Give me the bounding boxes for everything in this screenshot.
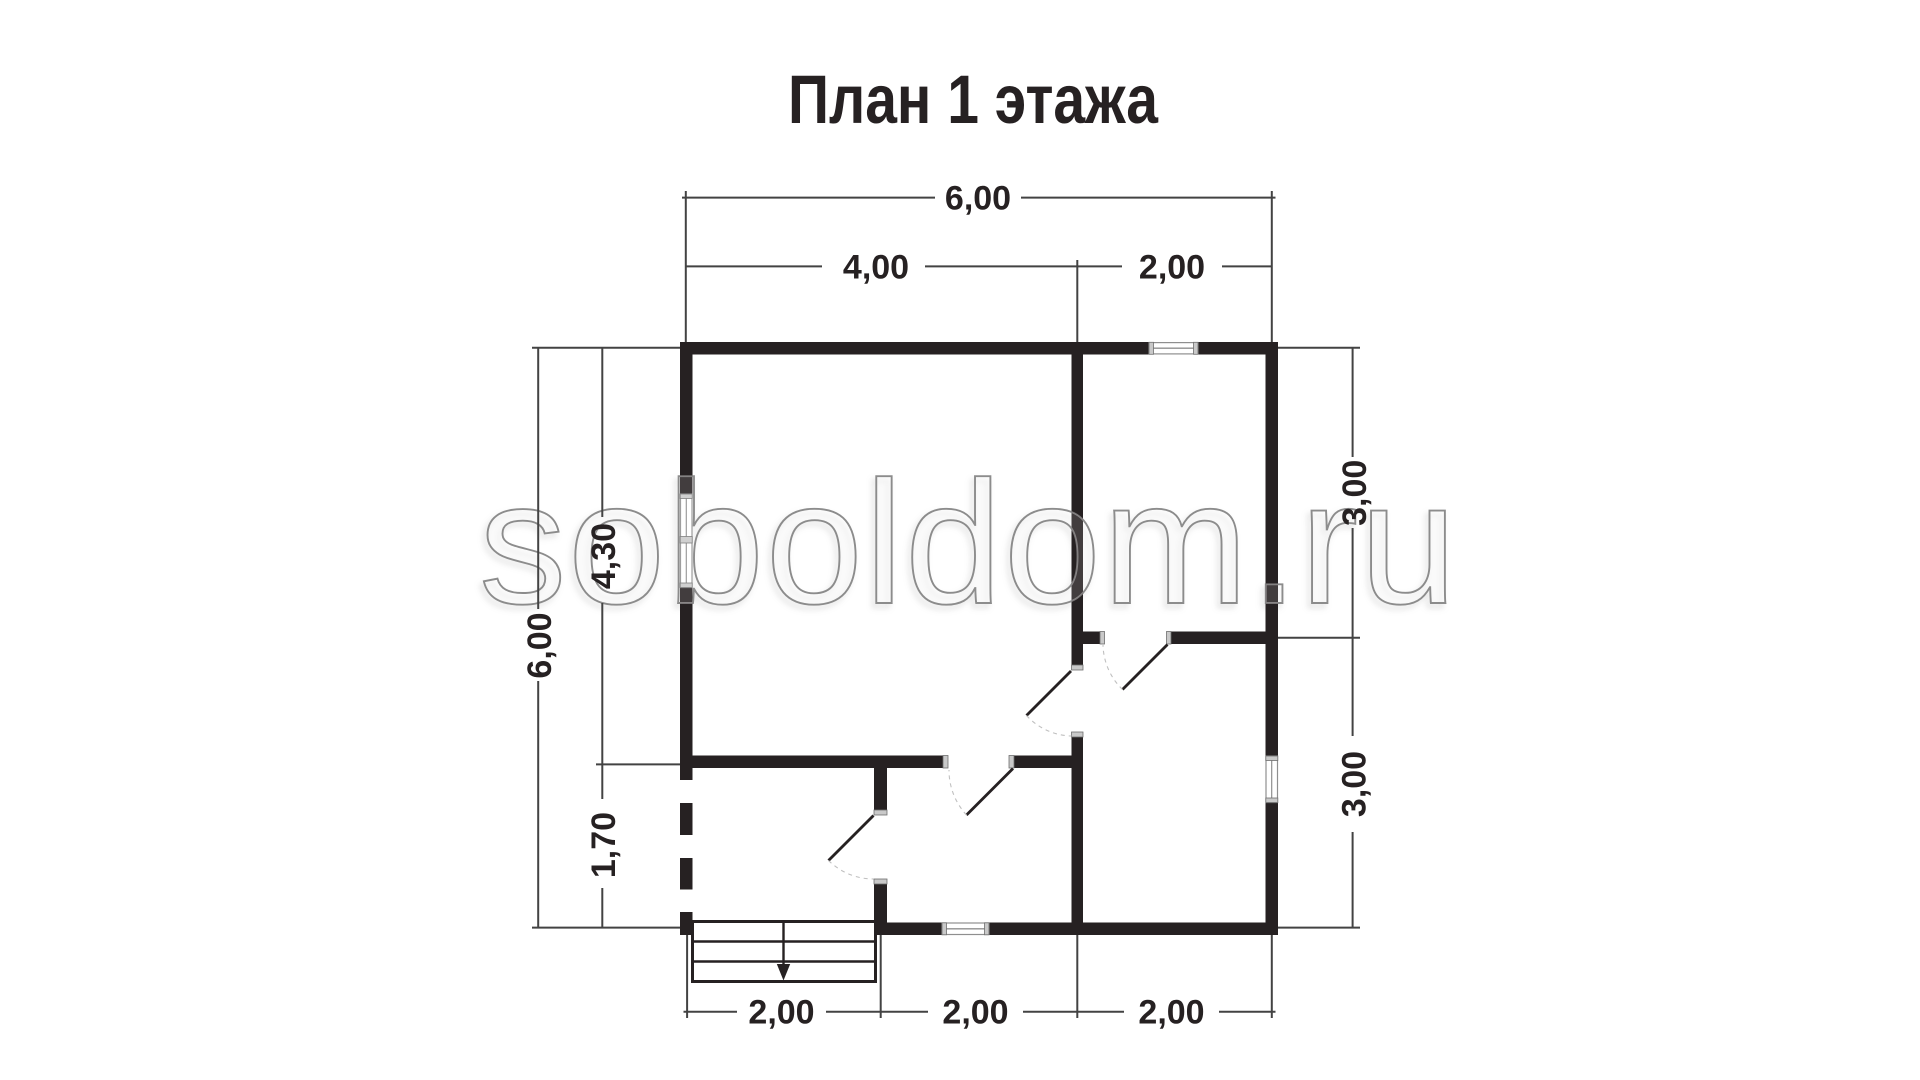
svg-text:1,70: 1,70 <box>585 812 623 878</box>
svg-text:soboldom.ru: soboldom.ru <box>479 446 1459 641</box>
svg-text:4,00: 4,00 <box>843 248 909 286</box>
svg-text:6,00: 6,00 <box>945 180 1011 218</box>
svg-text:6,00: 6,00 <box>521 612 559 678</box>
svg-text:2,00: 2,00 <box>1139 248 1205 286</box>
svg-text:2,00: 2,00 <box>748 993 814 1031</box>
svg-text:3,00: 3,00 <box>1336 460 1374 526</box>
svg-text:4,30: 4,30 <box>585 523 623 589</box>
svg-text:План 1 этажа: План 1 этажа <box>788 61 1159 138</box>
svg-text:2,00: 2,00 <box>1138 993 1204 1031</box>
svg-text:3,00: 3,00 <box>1336 751 1374 817</box>
svg-text:2,00: 2,00 <box>942 993 1008 1031</box>
